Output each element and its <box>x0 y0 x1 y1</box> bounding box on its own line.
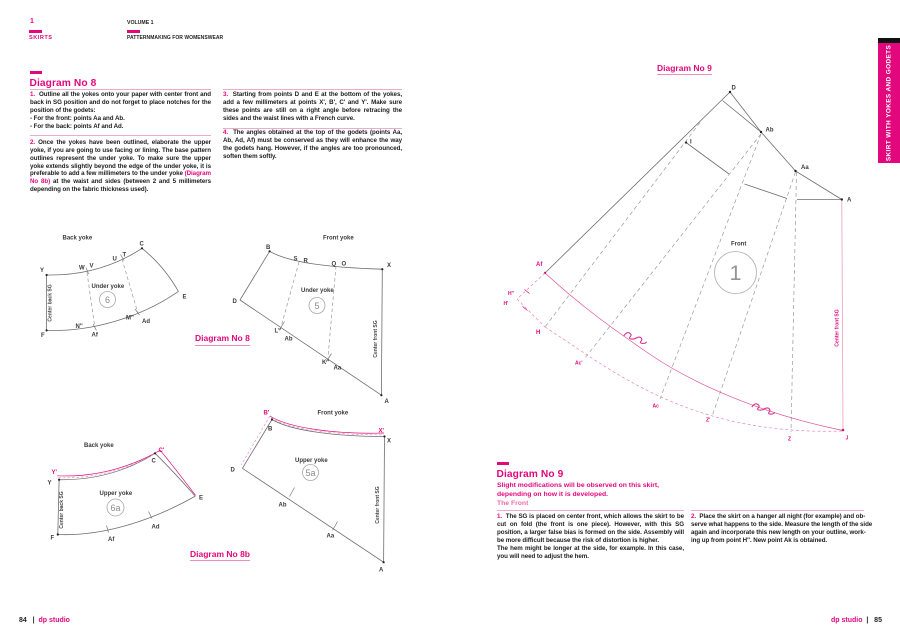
svg-text:B: B <box>266 245 271 251</box>
svg-text:J: J <box>846 436 849 442</box>
svg-text:Under yoke: Under yoke <box>301 288 334 294</box>
svg-text:C': C' <box>159 448 165 454</box>
svg-text:W: W <box>79 266 85 272</box>
svg-text:Q: Q <box>332 262 337 268</box>
svg-text:Under yoke: Under yoke <box>92 284 125 290</box>
svg-text:D: D <box>231 468 236 474</box>
svg-text:Center front SG: Center front SG <box>375 486 381 523</box>
svg-text:Front yoke: Front yoke <box>323 236 354 242</box>
svg-text:D: D <box>233 299 238 305</box>
svg-text:C: C <box>152 459 157 465</box>
svg-text:Y: Y <box>40 268 44 274</box>
svg-text:Aa: Aa <box>334 366 342 372</box>
svg-text:H: H <box>536 330 540 336</box>
svg-text:Ac': Ac' <box>575 361 583 367</box>
svg-text:Center back SG: Center back SG <box>48 284 54 321</box>
svg-text:F: F <box>51 536 55 542</box>
svg-text:Back yoke: Back yoke <box>84 443 114 449</box>
svg-text:Back yoke: Back yoke <box>63 236 93 242</box>
svg-text:L'': L'' <box>275 329 282 335</box>
svg-text:Upper yoke: Upper yoke <box>295 458 328 464</box>
svg-text:Upper yoke: Upper yoke <box>100 491 133 497</box>
svg-text:F: F <box>41 333 45 339</box>
svg-text:Y': Y' <box>52 470 58 476</box>
svg-text:E: E <box>183 295 187 301</box>
svg-text:Af: Af <box>92 333 99 339</box>
svg-text:M'': M'' <box>126 316 134 322</box>
svg-text:A: A <box>379 568 384 574</box>
svg-text:5a: 5a <box>305 468 315 478</box>
svg-text:A: A <box>847 198 852 204</box>
svg-text:6: 6 <box>105 295 110 305</box>
svg-text:N'': N'' <box>76 324 84 330</box>
svg-text:Ab: Ab <box>766 128 774 134</box>
svg-text:B': B' <box>264 411 270 417</box>
svg-text:U: U <box>113 257 117 263</box>
svg-text:C: C <box>140 242 145 248</box>
svg-text:Aa: Aa <box>801 165 809 171</box>
svg-text:Front: Front <box>731 242 746 248</box>
svg-text:H'': H'' <box>508 291 514 297</box>
svg-text:O: O <box>342 262 347 268</box>
svg-text:Center front SG: Center front SG <box>835 309 841 346</box>
svg-text:S: S <box>294 257 298 263</box>
svg-text:6a: 6a <box>110 503 120 513</box>
svg-text:Ad: Ad <box>142 319 150 325</box>
svg-text:X: X <box>387 439 391 445</box>
svg-text:Ab: Ab <box>279 503 287 509</box>
svg-text:Aa: Aa <box>327 534 335 540</box>
svg-text:H': H' <box>504 301 509 307</box>
svg-text:Y: Y <box>48 481 52 487</box>
svg-text:1: 1 <box>730 261 742 285</box>
svg-text:Front yoke: Front yoke <box>318 411 349 417</box>
svg-text:Z: Z <box>788 437 791 443</box>
svg-text:Center back SG: Center back SG <box>59 491 65 528</box>
svg-text:Center front SG: Center front SG <box>373 320 379 357</box>
svg-text:X': X' <box>379 429 385 435</box>
svg-text:R: R <box>304 259 309 265</box>
svg-text:Ac: Ac <box>653 404 660 410</box>
svg-text:V: V <box>90 264 94 270</box>
svg-text:Z': Z' <box>706 418 710 424</box>
svg-text:K'': K'' <box>322 360 330 366</box>
svg-text:Ab: Ab <box>285 337 293 343</box>
svg-text:D: D <box>732 86 737 92</box>
svg-text:I: I <box>690 140 692 146</box>
svg-text:E: E <box>199 496 203 502</box>
svg-text:X: X <box>387 263 391 269</box>
svg-text:A: A <box>385 399 390 405</box>
svg-text:B: B <box>268 427 273 433</box>
svg-text:T: T <box>123 253 127 259</box>
svg-text:5: 5 <box>314 301 319 311</box>
svg-text:Af: Af <box>108 537 115 543</box>
svg-text:Ad: Ad <box>152 525 160 531</box>
svg-text:Af: Af <box>536 262 543 268</box>
